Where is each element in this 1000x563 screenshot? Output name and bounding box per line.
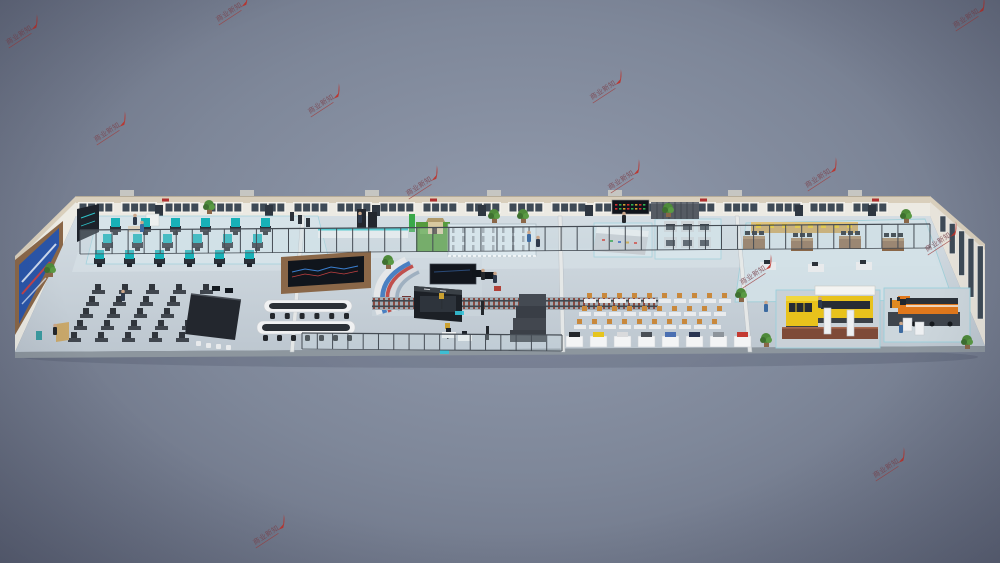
- window-pane: [389, 204, 396, 212]
- person-figure: [536, 236, 540, 247]
- person-figure: [527, 231, 531, 242]
- gate-machine: [298, 215, 302, 224]
- sleeper: [408, 298, 410, 309]
- watermark: 商业新知: [949, 0, 991, 31]
- right-wall-window: [977, 246, 983, 319]
- window-pane: [527, 204, 534, 212]
- sleeper: [473, 298, 475, 309]
- right-wall-window: [940, 216, 946, 232]
- window-pane: [535, 204, 542, 212]
- led-dot: [615, 208, 617, 210]
- window-pane: [166, 204, 173, 212]
- white-chair: [196, 341, 201, 346]
- red-sign: [430, 199, 437, 202]
- door-opening: [265, 205, 273, 216]
- yellow-locomotive: [786, 296, 818, 332]
- window-pane: [725, 204, 732, 212]
- sleeper: [388, 298, 390, 309]
- window-pane: [776, 204, 783, 212]
- simulator-screens: [430, 264, 476, 284]
- led-dot: [635, 204, 637, 206]
- rooftop-unit: [240, 190, 254, 196]
- display-item: [641, 332, 652, 337]
- red-sign: [700, 199, 707, 202]
- window-pane: [836, 204, 843, 212]
- rooftop-unit: [120, 190, 134, 196]
- red-sign: [162, 199, 169, 202]
- window-pane: [295, 204, 302, 212]
- metro-line-display: [288, 256, 364, 287]
- person-figure: [899, 322, 903, 333]
- sleeper: [568, 298, 570, 309]
- window-pane: [252, 204, 259, 212]
- window-pane: [338, 204, 345, 212]
- window-pane: [140, 204, 147, 212]
- display-item: [713, 332, 724, 337]
- table-monitor: [212, 286, 220, 291]
- window-pane: [785, 204, 792, 212]
- train-car-model: [414, 286, 462, 322]
- window-pane: [217, 204, 224, 212]
- window-pane: [346, 204, 353, 212]
- rooftop-unit: [728, 190, 742, 196]
- back-wall: [76, 190, 930, 216]
- person-figure: [121, 290, 125, 301]
- sleeper: [398, 298, 400, 309]
- door-opening: [478, 205, 486, 216]
- watermark: 商业新知: [304, 83, 346, 117]
- rooftop-unit: [365, 190, 379, 196]
- window-pane: [510, 204, 517, 212]
- display-item: [569, 332, 580, 337]
- window-pane: [811, 204, 818, 212]
- door-opening: [585, 205, 593, 216]
- watermark: 商业新知: [2, 14, 44, 48]
- operator-chair: [329, 313, 334, 319]
- sleeper: [498, 298, 500, 309]
- bollard-stand: [481, 301, 484, 315]
- operator-chair: [291, 335, 296, 341]
- lab-equipment2: [812, 262, 818, 266]
- white-chair: [226, 345, 231, 350]
- door-opening: [795, 205, 803, 216]
- lab-equipment: [764, 260, 770, 264]
- sleeper: [403, 298, 405, 309]
- display-item: [617, 332, 628, 337]
- led-dot: [619, 204, 621, 206]
- parapet-band: [76, 196, 930, 203]
- locker-row: [651, 202, 699, 219]
- watermark: 商业新知: [604, 159, 646, 193]
- gate-machine: [290, 212, 294, 221]
- operator-chair: [270, 313, 275, 319]
- facility-render: 商业新知商业新知商业新知商业新知商业新知商业新知商业新知商业新知商业新知商业新知…: [0, 0, 1000, 563]
- glass-partition: [302, 333, 562, 351]
- right-wall-window: [959, 231, 965, 276]
- rooftop-unit: [487, 190, 501, 196]
- white-chair: [206, 343, 211, 348]
- gate-machine: [306, 218, 310, 227]
- sleeper: [553, 298, 555, 309]
- red-cart: [494, 286, 501, 291]
- person-figure: [133, 214, 137, 225]
- person-figure: [622, 212, 626, 223]
- table-monitor2: [225, 288, 233, 293]
- window-pane: [320, 204, 327, 212]
- led-dot: [627, 208, 629, 210]
- sleeper: [548, 298, 550, 309]
- sleeper: [563, 298, 565, 309]
- dark-conference-table: [185, 294, 241, 340]
- window-pane: [105, 204, 112, 212]
- window-pane: [553, 204, 560, 212]
- sleeper: [503, 298, 505, 309]
- sleeper: [393, 298, 395, 309]
- window-pane: [303, 204, 310, 212]
- led-dot: [623, 208, 625, 210]
- led-dot: [631, 204, 633, 206]
- window-pane: [879, 204, 886, 212]
- window-pane: [277, 204, 284, 212]
- sleeper: [463, 298, 465, 309]
- floor-decal2: [440, 350, 449, 354]
- window-pane: [381, 204, 388, 212]
- window-pane: [174, 204, 181, 212]
- window-pane: [596, 204, 603, 212]
- hut-roof: [426, 218, 445, 222]
- sleeper: [558, 298, 560, 309]
- sleeper: [493, 298, 495, 309]
- podium: [56, 322, 69, 342]
- door-opening: [868, 205, 876, 216]
- sleeper: [573, 298, 575, 309]
- window-pane: [424, 204, 431, 212]
- floor-decal: [455, 311, 464, 315]
- operator-chair: [263, 335, 268, 341]
- led-schedule-board: [612, 200, 649, 214]
- watermark: 商业新知: [249, 514, 291, 548]
- window-pane: [854, 204, 861, 212]
- operator-chair: [314, 313, 319, 319]
- led-dot: [643, 208, 645, 210]
- person-figure: [764, 301, 768, 312]
- window-pane: [312, 204, 319, 212]
- window-pane: [406, 204, 413, 212]
- window-pane: [699, 204, 706, 212]
- led-dot: [619, 208, 621, 210]
- operator-chair: [344, 313, 349, 319]
- sleeper: [513, 298, 515, 309]
- sleeper: [378, 298, 380, 309]
- led-dot: [639, 208, 641, 210]
- person-figure: [481, 269, 485, 280]
- watermark: 商业新知: [402, 165, 444, 199]
- led-dot: [627, 204, 629, 206]
- window-pane: [432, 204, 439, 212]
- sleeper: [478, 298, 480, 309]
- led-dot: [643, 204, 645, 206]
- window-pane: [707, 204, 714, 212]
- window-pane: [604, 204, 611, 212]
- window-pane: [828, 204, 835, 212]
- window-pane: [578, 204, 585, 212]
- window-pane: [733, 204, 740, 212]
- red-sign: [872, 199, 879, 202]
- operator-chair: [277, 335, 282, 341]
- window-pane: [441, 204, 448, 212]
- sleeper: [488, 298, 490, 309]
- window-pane: [148, 204, 155, 212]
- window-pane: [131, 204, 138, 212]
- window-pane: [768, 204, 775, 212]
- window-pane: [561, 204, 568, 212]
- person-figure: [140, 221, 144, 232]
- person-figure: [818, 297, 822, 308]
- window-pane: [742, 204, 749, 212]
- tv-stand-screen: [472, 270, 482, 277]
- window-pane: [449, 204, 456, 212]
- window-pane: [819, 204, 826, 212]
- isometric-scene: 商业新知商业新知商业新知商业新知商业新知商业新知商业新知商业新知商业新知商业新知…: [0, 0, 1000, 563]
- sleeper: [508, 298, 510, 309]
- display-item: [593, 332, 604, 337]
- window-pane: [467, 204, 474, 212]
- display-item: [665, 332, 676, 337]
- tv-stand-screen2: [484, 272, 494, 279]
- lab-equipment3: [860, 260, 866, 264]
- display-item: [737, 332, 748, 337]
- window-pane: [398, 204, 405, 212]
- led-dot: [623, 204, 625, 206]
- sleeper: [468, 298, 470, 309]
- person-figure: [53, 324, 57, 335]
- window-pane: [191, 204, 198, 212]
- white-chair: [216, 344, 221, 349]
- operator-chair: [300, 313, 305, 319]
- led-dot: [639, 204, 641, 206]
- rooftop-unit: [848, 190, 862, 196]
- led-dot: [631, 208, 633, 210]
- window-pane: [570, 204, 577, 212]
- watermark: 商业新知: [801, 157, 843, 191]
- watermark: 商业新知: [586, 69, 628, 103]
- person-figure: [493, 272, 497, 283]
- watermark: 商业新知: [869, 447, 911, 481]
- sleeper: [578, 298, 580, 309]
- trash-bin: [36, 331, 42, 340]
- window-pane: [750, 204, 757, 212]
- window-pane: [234, 204, 241, 212]
- window-pane: [123, 204, 130, 212]
- sleeper: [383, 298, 385, 309]
- operator-chair: [285, 313, 290, 319]
- window-pane: [183, 204, 190, 212]
- person-figure: [358, 212, 362, 223]
- led-dot: [615, 204, 617, 206]
- sleeper: [373, 298, 375, 309]
- led-dot: [635, 208, 637, 210]
- display-item: [689, 332, 700, 337]
- window-pane: [226, 204, 233, 212]
- watermark: 商业新知: [90, 111, 132, 145]
- watermark: 商业新知: [212, 0, 254, 25]
